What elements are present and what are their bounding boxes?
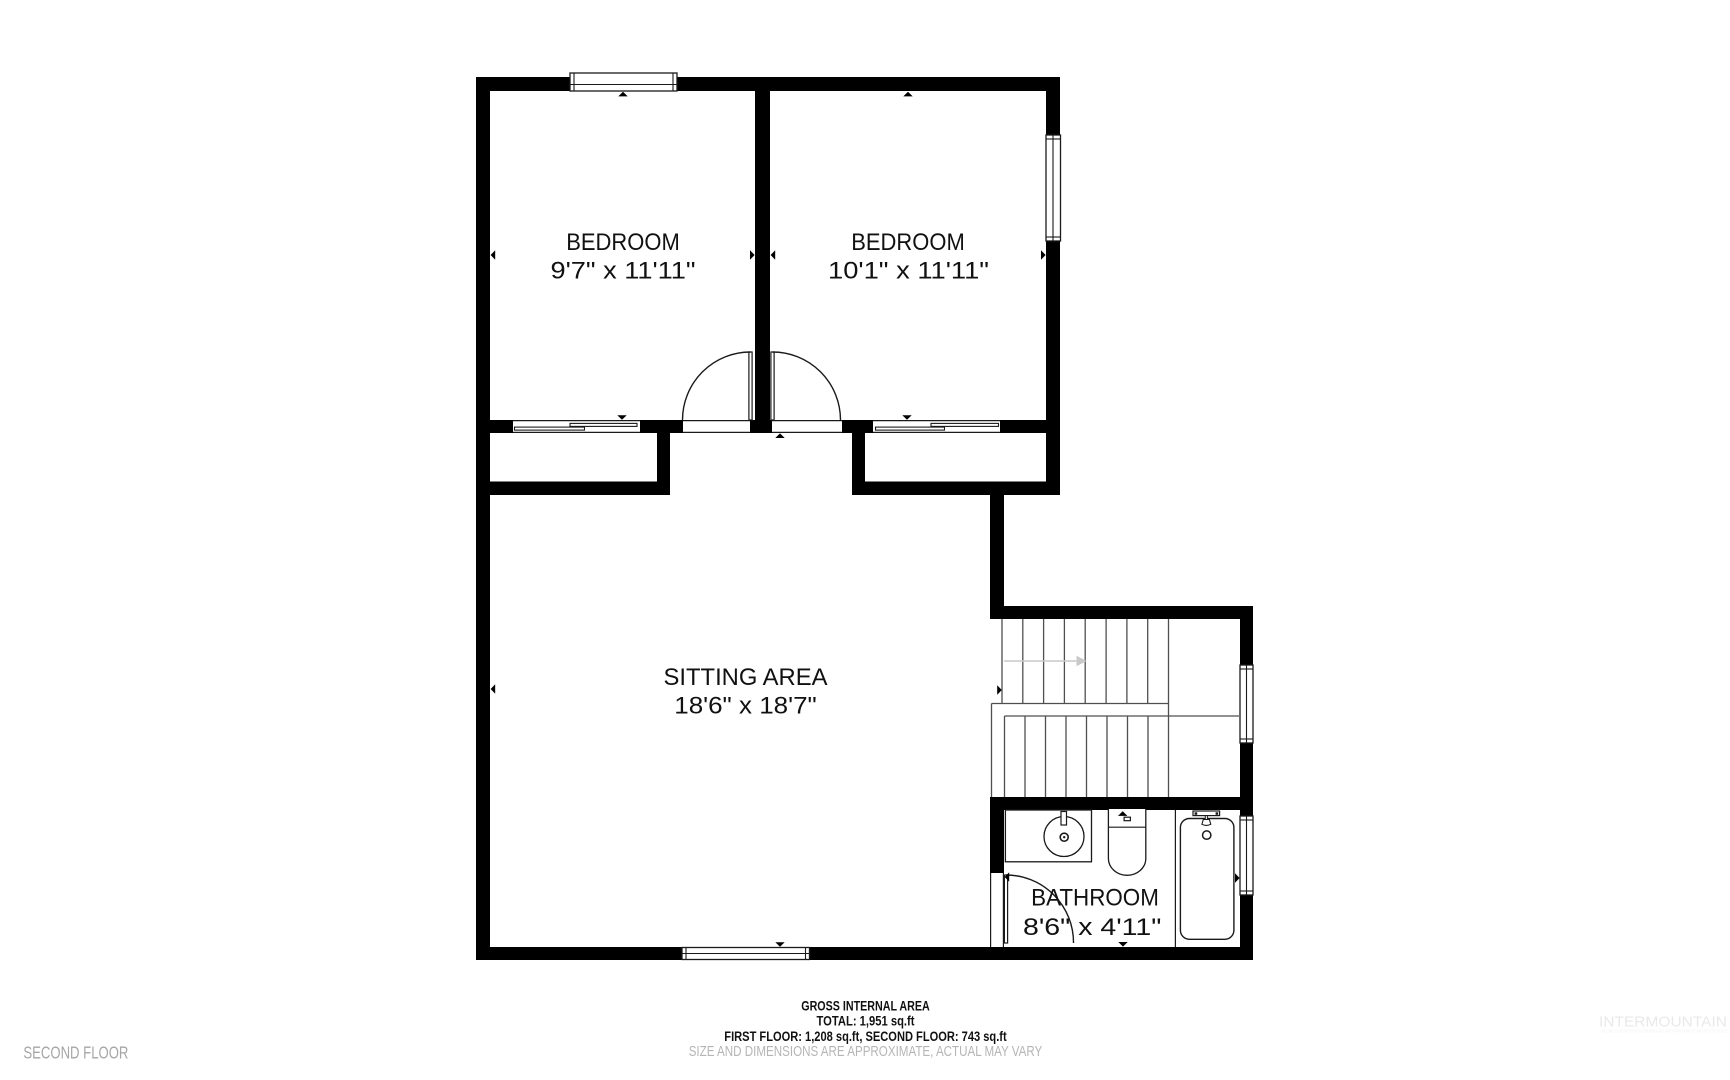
svg-text:SECOND FLOOR: SECOND FLOOR: [23, 1043, 128, 1063]
svg-text:8'6" x 4'11": 8'6" x 4'11": [1023, 914, 1161, 941]
svg-text:TOTAL: 1,951 sq.ft: TOTAL: 1,951 sq.ft: [817, 1014, 915, 1030]
svg-text:9'7" x 11'11": 9'7" x 11'11": [551, 257, 696, 284]
svg-text:ALL MEASUREMENTS AND DIMENSION: ALL MEASUREMENTS AND DIMENSIONS ARE APPR…: [1602, 1029, 1727, 1034]
svg-text:GROSS INTERNAL AREA: GROSS INTERNAL AREA: [801, 998, 930, 1014]
svg-text:18'6" x 18'7": 18'6" x 18'7": [674, 693, 817, 720]
svg-text:10'1" x 11'11": 10'1" x 11'11": [828, 257, 989, 284]
svg-text:BATHROOM: BATHROOM: [1031, 885, 1159, 912]
svg-text:BEDROOM: BEDROOM: [566, 229, 680, 256]
svg-text:BEDROOM: BEDROOM: [851, 229, 965, 256]
svg-text:SITTING AREA: SITTING AREA: [664, 664, 828, 691]
svg-text:SIZE AND DIMENSIONS ARE APPROX: SIZE AND DIMENSIONS ARE APPROXIMATE, ACT…: [689, 1044, 1043, 1060]
svg-text:FIRST FLOOR: 1,208 sq.ft, SECO: FIRST FLOOR: 1,208 sq.ft, SECOND FLOOR: …: [724, 1029, 1007, 1045]
